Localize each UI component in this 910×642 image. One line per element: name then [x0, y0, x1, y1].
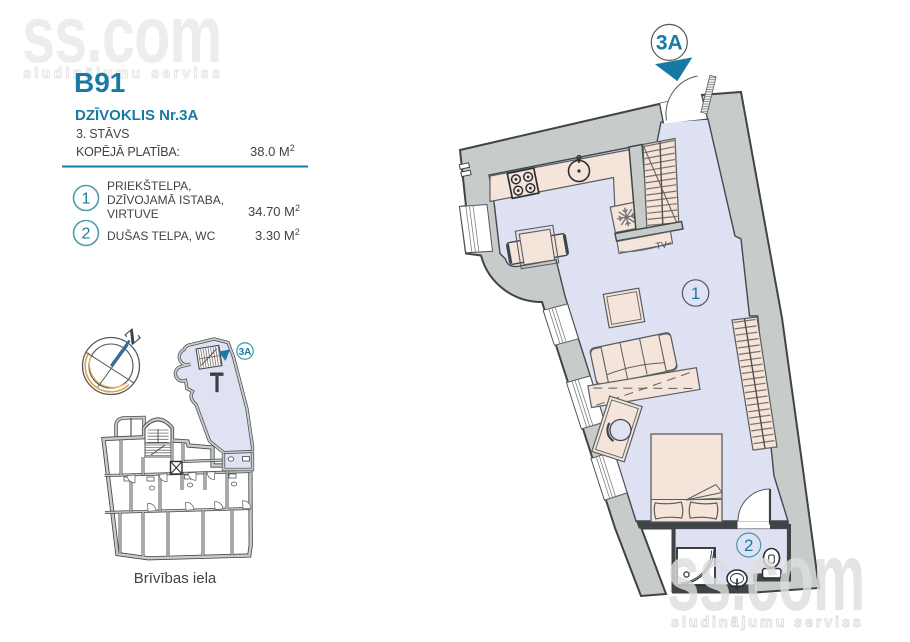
- svg-text:DUŠAS TELPA, WC: DUŠAS TELPA, WC: [107, 228, 216, 243]
- svg-text:DZĪVOKLIS Nr.3A: DZĪVOKLIS Nr.3A: [75, 107, 199, 124]
- svg-text:2: 2: [82, 226, 91, 243]
- svg-text:38.0 M2: 38.0 M2: [250, 143, 295, 159]
- svg-text:3A: 3A: [239, 347, 252, 358]
- svg-text:KOPĒJĀ PLATĪBA:: KOPĒJĀ PLATĪBA:: [76, 145, 180, 159]
- svg-text:DZĪVOJAMĀ ISTABA,: DZĪVOJAMĀ ISTABA,: [107, 193, 224, 207]
- svg-text:3.30 M2: 3.30 M2: [255, 227, 300, 243]
- svg-text:VIRTUVE: VIRTUVE: [107, 207, 159, 221]
- svg-text:1: 1: [691, 284, 700, 303]
- svg-text:B91: B91: [74, 67, 125, 98]
- svg-text:PRIEKŠTELPA,: PRIEKŠTELPA,: [107, 178, 191, 193]
- svg-text:TV: TV: [655, 239, 668, 251]
- svg-text:3. STĀVS: 3. STĀVS: [76, 127, 129, 141]
- svg-text:34.70 M2: 34.70 M2: [248, 203, 300, 219]
- svg-text:1: 1: [82, 191, 91, 208]
- svg-text:Brīvības iela: Brīvības iela: [134, 570, 217, 587]
- svg-text:3A: 3A: [656, 32, 683, 55]
- svg-text:sludinājumu serviss: sludinājumu serviss: [671, 615, 864, 631]
